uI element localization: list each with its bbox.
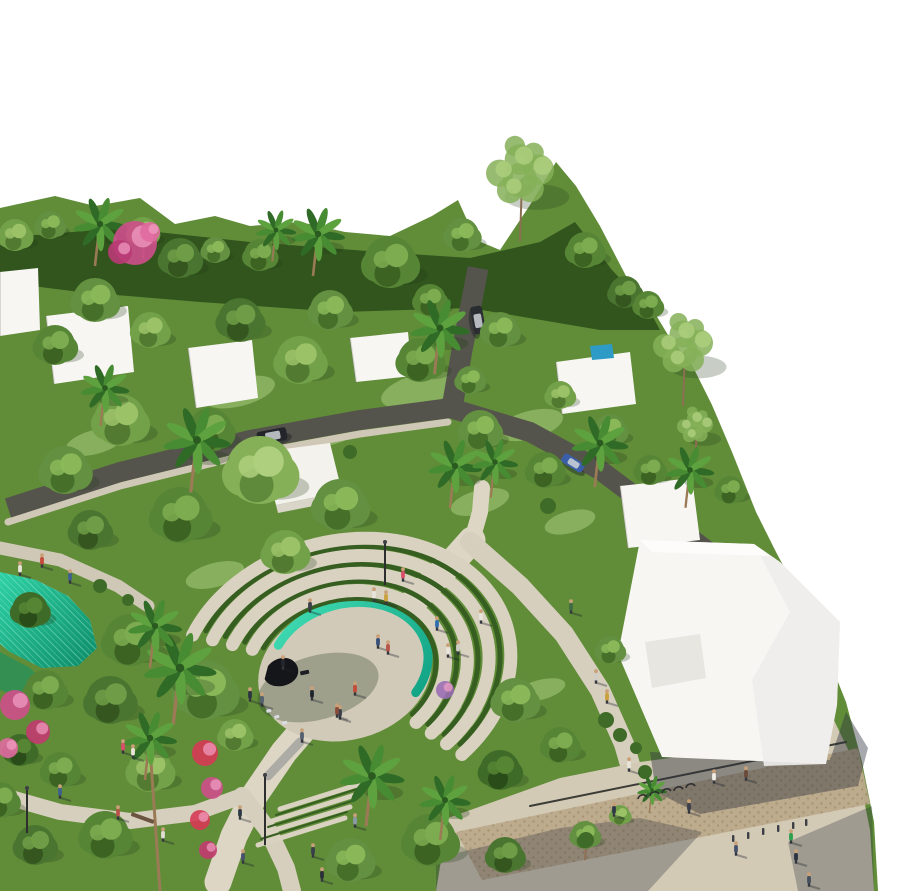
pole-lamp <box>383 540 387 544</box>
tree-canopy-light <box>285 350 301 366</box>
bollard <box>762 828 764 835</box>
flower-highlight <box>210 779 221 790</box>
flower-bougainvillea <box>108 240 132 264</box>
person-head <box>376 634 380 638</box>
person-body <box>353 685 357 693</box>
flower-highlight <box>118 242 130 254</box>
tree-canopy-light <box>226 311 241 326</box>
person-head <box>281 655 285 659</box>
person-head <box>260 692 264 696</box>
bollard <box>792 822 794 829</box>
person-head <box>131 744 135 748</box>
shrub <box>93 579 107 593</box>
person-head <box>734 841 738 845</box>
person-body <box>807 876 811 884</box>
person-body <box>376 638 380 646</box>
palm-crown <box>492 459 497 464</box>
tree-canopy-light <box>49 762 61 774</box>
person-head <box>789 829 793 833</box>
person-head <box>456 640 460 644</box>
palm-crown <box>274 228 279 233</box>
person-head <box>116 805 120 809</box>
palm-crown <box>442 797 448 803</box>
tree-canopy-light <box>506 178 522 194</box>
tree-canopy-light <box>601 644 610 653</box>
flower-highlight <box>444 683 453 692</box>
tree-canopy-light <box>162 503 180 521</box>
person-head <box>353 681 357 685</box>
person-body <box>605 693 609 701</box>
person-body <box>435 620 439 628</box>
person-head <box>241 849 245 853</box>
tree-canopy-light <box>42 336 55 349</box>
person-body <box>386 644 390 652</box>
tree-canopy-light <box>515 146 533 164</box>
tree-canopy-light <box>114 629 131 646</box>
person-head <box>353 813 357 817</box>
tree-canopy-light <box>574 242 586 254</box>
shrub <box>638 765 652 779</box>
palm-crown <box>102 385 108 391</box>
park-aerial-render <box>0 0 923 891</box>
flower-highlight <box>36 722 48 734</box>
palm-crown <box>650 788 654 792</box>
tree-canopy-light <box>679 322 695 338</box>
tree-canopy-light <box>534 157 552 175</box>
person-body <box>353 817 357 825</box>
flower-bougainvillea <box>201 777 223 799</box>
bollard <box>747 832 749 839</box>
person-body <box>131 748 135 756</box>
person-head <box>569 599 573 603</box>
flower-highlight <box>207 843 216 852</box>
tree-canopy-light <box>207 244 216 253</box>
bollard <box>777 825 779 832</box>
palm-crown <box>97 221 103 227</box>
person-body <box>281 659 285 667</box>
flower-bougainvillea <box>0 690 30 720</box>
person-head <box>58 784 62 788</box>
person-body <box>260 696 264 704</box>
person-head <box>308 598 312 602</box>
person-head <box>121 739 125 743</box>
person-head <box>794 849 798 853</box>
palm-crown <box>147 735 153 741</box>
person-head <box>594 669 598 673</box>
person-body <box>18 565 22 573</box>
shrub <box>613 728 627 742</box>
palm-crown <box>152 623 158 629</box>
person-head <box>161 827 165 831</box>
person-head <box>384 590 388 594</box>
shrub <box>540 498 556 514</box>
tree-canopy-light <box>19 602 31 614</box>
person-body <box>248 691 252 699</box>
person-body <box>594 673 598 681</box>
backyard-pool <box>590 344 614 360</box>
person-body <box>372 591 376 599</box>
tree-canopy-light <box>534 462 546 474</box>
tree-canopy-light <box>615 285 626 296</box>
flower-highlight <box>13 693 28 708</box>
person-head <box>248 687 252 691</box>
person-body <box>627 761 631 769</box>
tree-canopy-light <box>167 249 180 262</box>
tree-canopy-light <box>721 484 730 493</box>
palm-crown <box>176 664 185 673</box>
person-body <box>238 809 242 817</box>
tree-canopy-light <box>50 460 66 476</box>
person-body <box>734 845 738 853</box>
tree-canopy-light <box>77 521 90 534</box>
person-body <box>308 602 312 610</box>
shrub <box>598 712 614 728</box>
person-head <box>627 757 631 761</box>
shrub <box>630 742 642 754</box>
flower-bougainvillea <box>26 720 50 744</box>
person-body <box>687 803 691 811</box>
tree-canopy-light <box>374 251 391 268</box>
person-head <box>435 616 439 620</box>
person-body <box>789 833 793 841</box>
tree-canopy-light <box>688 429 696 437</box>
person-body <box>121 743 125 751</box>
person-head <box>372 587 376 591</box>
tree-canopy-light <box>324 494 341 511</box>
person-body <box>68 573 72 581</box>
person-head <box>687 799 691 803</box>
tree-canopy-light <box>682 420 691 429</box>
person-head <box>320 867 324 871</box>
person-head <box>300 728 304 732</box>
palm-crown <box>687 467 693 473</box>
tree-canopy-light <box>641 464 651 474</box>
tree-canopy-light <box>136 761 151 776</box>
tree-canopy-light <box>702 418 712 428</box>
person-body <box>794 853 798 861</box>
tree-canopy-light <box>549 737 561 749</box>
pole-lamp <box>263 773 267 777</box>
tree-canopy-light <box>501 691 516 706</box>
person-body <box>311 847 315 855</box>
flower-highlight <box>199 812 209 822</box>
person-body <box>300 732 304 740</box>
person-body <box>744 770 748 778</box>
tree-canopy-light <box>95 690 111 706</box>
tree-canopy-light <box>5 228 16 239</box>
tree-canopy-light <box>661 335 675 349</box>
tree-canopy-light <box>451 228 462 239</box>
flower-highlight <box>7 740 17 750</box>
person-head <box>605 689 609 693</box>
person-body <box>241 853 245 861</box>
person-head <box>612 802 616 806</box>
person-body <box>320 871 324 879</box>
person-head <box>446 643 450 647</box>
walkway <box>472 488 482 540</box>
flower-bougainvillea <box>190 810 210 830</box>
tree-canopy-light <box>467 421 480 434</box>
bollard <box>805 819 807 826</box>
tree-canopy-light <box>496 161 512 177</box>
tree-canopy-light <box>317 301 330 314</box>
tree-canopy-light <box>239 455 261 477</box>
person-head <box>18 561 22 565</box>
pole-lamp <box>25 786 29 790</box>
person-body <box>116 809 120 817</box>
tree-canopy-light <box>551 389 560 398</box>
person-body <box>479 613 483 621</box>
tree-canopy-light <box>22 836 35 849</box>
palm-crown <box>597 440 604 447</box>
person-head <box>335 703 339 707</box>
person-head <box>40 553 44 557</box>
tree-canopy-light <box>487 761 500 774</box>
person-body <box>569 603 573 611</box>
palm-crown <box>193 436 201 444</box>
flower-bougainvillea <box>192 740 218 766</box>
person-body <box>310 690 314 698</box>
person-head <box>807 872 811 876</box>
person-body <box>456 644 460 652</box>
person-head <box>238 805 242 809</box>
tree-canopy-light <box>81 291 96 306</box>
person-head <box>310 686 314 690</box>
tree-canopy-light <box>41 219 50 228</box>
person-head <box>68 569 72 573</box>
tree-canopy-light <box>406 351 421 366</box>
person-head <box>712 769 716 773</box>
tree-canopy-light <box>489 322 501 334</box>
flower-highlight <box>149 224 159 234</box>
person-body <box>40 557 44 565</box>
tree-canopy-light <box>494 847 506 859</box>
flower-highlight <box>203 743 216 756</box>
tree-canopy-light <box>336 851 351 866</box>
render-canvas <box>0 0 923 891</box>
person-head <box>386 640 390 644</box>
person-body <box>161 831 165 839</box>
tree-canopy-light <box>271 543 286 558</box>
shrub <box>122 594 134 606</box>
flower-bougainvillea <box>199 841 217 859</box>
tree-canopy-light <box>639 299 648 308</box>
person-head <box>479 609 483 613</box>
person-head <box>311 843 315 847</box>
person-body <box>58 788 62 796</box>
person-head <box>401 567 405 571</box>
tree-canopy-light <box>461 374 470 383</box>
palm-crown <box>315 231 321 237</box>
person-body <box>612 806 616 814</box>
person-body <box>446 647 450 655</box>
tree-canopy-light <box>671 351 685 365</box>
tree-canopy-light <box>695 331 711 347</box>
bollard <box>732 835 734 842</box>
shrub <box>578 832 594 848</box>
tree-canopy-light <box>692 412 702 422</box>
white-house <box>188 340 258 408</box>
flower-bougainvillea <box>436 681 454 699</box>
person-body <box>384 594 388 602</box>
tree-canopy-light <box>32 681 45 694</box>
tree-canopy-light <box>139 322 151 334</box>
palm-crown <box>368 772 376 780</box>
tree-canopy-light <box>414 829 431 846</box>
person-body <box>712 773 716 781</box>
person-body <box>335 707 339 715</box>
palm-crown <box>436 324 443 331</box>
flower-bougainvillea <box>140 222 160 242</box>
shrub <box>343 445 357 459</box>
palm-crown <box>452 463 458 469</box>
tree-canopy-light <box>225 728 236 739</box>
tree-canopy-light <box>90 825 106 841</box>
tree-canopy-light <box>250 248 261 259</box>
person-body <box>401 571 405 579</box>
white-house <box>0 268 40 336</box>
person-head <box>744 766 748 770</box>
